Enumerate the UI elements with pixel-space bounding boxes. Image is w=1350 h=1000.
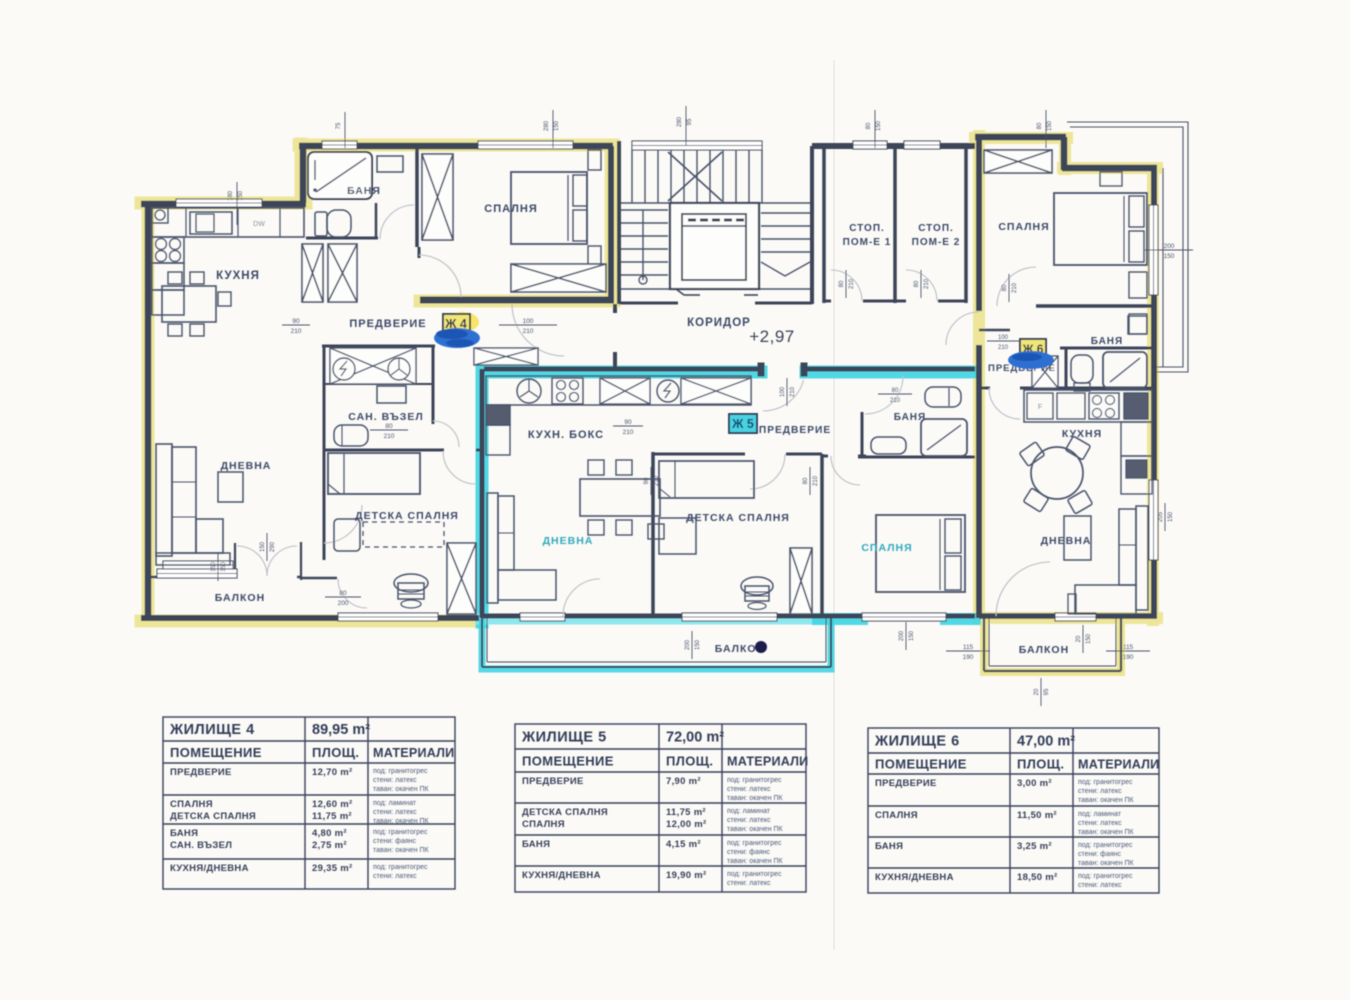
svg-text:72,00 m²: 72,00 m² [666, 730, 724, 746]
svg-text:таван: окачен ПК: таван: окачен ПК [1078, 860, 1135, 867]
svg-text:под: гранитогрес: под: гранитогрес [1078, 873, 1133, 880]
svg-text:205: 205 [1158, 511, 1164, 522]
svg-text:ПЛОЩ.: ПЛОЩ. [666, 754, 713, 769]
svg-text:стени: латекс: стени: латекс [373, 777, 417, 784]
svg-text:под: ламинат: под: ламинат [373, 800, 417, 807]
svg-text:150: 150 [260, 541, 266, 552]
svg-text:210: 210 [924, 278, 930, 289]
svg-text:таван: окачен ПК: таван: окачен ПК [1078, 797, 1135, 804]
svg-text:47,00 m²: 47,00 m² [1017, 734, 1075, 750]
svg-text:150: 150 [554, 120, 560, 131]
svg-text:4,15 m²: 4,15 m² [666, 839, 701, 850]
svg-text:190: 190 [963, 654, 974, 661]
svg-text:ПОМЕЩЕНИЕ: ПОМЕЩЕНИЕ [170, 745, 262, 760]
svg-text:СПАЛНЯ: СПАЛНЯ [484, 203, 538, 215]
svg-text:под: гранитогрес: под: гранитогрес [373, 864, 428, 871]
svg-text:210: 210 [623, 429, 634, 436]
svg-text:таван: окачен ПК: таван: окачен ПК [1078, 829, 1135, 836]
svg-text:200: 200 [1164, 243, 1175, 250]
svg-text:СПАЛНЯ: СПАЛНЯ [875, 810, 918, 821]
svg-text:115: 115 [963, 644, 974, 651]
svg-text:80: 80 [914, 280, 920, 287]
svg-text:210: 210 [384, 433, 395, 440]
svg-text:таван: окачен ПК: таван: окачен ПК [727, 795, 784, 802]
svg-text:стени: фаянс: стени: фаянс [373, 838, 416, 845]
svg-text:СПАЛНЯ: СПАЛНЯ [861, 542, 912, 554]
svg-text:ЖИЛИЩЕ 4: ЖИЛИЩЕ 4 [169, 722, 255, 738]
svg-text:12,00 m²: 12,00 m² [666, 819, 706, 830]
svg-text:под: гранитогрес: под: гранитогрес [1078, 779, 1133, 786]
svg-text:20: 20 [1076, 635, 1082, 642]
svg-text:200: 200 [685, 639, 691, 650]
svg-text:ДНЕВНА: ДНЕВНА [1041, 535, 1092, 547]
svg-text:КУХНЯ/ДНЕВНА: КУХНЯ/ДНЕВНА [875, 872, 954, 883]
svg-text:+2,97: +2,97 [749, 327, 795, 346]
svg-text:150: 150 [909, 630, 915, 641]
svg-text:стени: латекс: стени: латекс [373, 809, 417, 816]
svg-text:САН. ВЪЗЕЛ: САН. ВЪЗЕЛ [170, 840, 232, 851]
svg-text:80: 80 [1037, 122, 1043, 129]
svg-text:280: 280 [677, 116, 683, 127]
svg-text:ПРЕДВЕРИЕ: ПРЕДВЕРИЕ [875, 778, 937, 789]
svg-text:под: ламинат: под: ламинат [727, 808, 771, 815]
svg-text:80: 80 [339, 590, 347, 597]
svg-text:ДНЕВНА: ДНЕВНА [543, 535, 594, 547]
svg-text:ПОМЕЩЕНИЕ: ПОМЕЩЕНИЕ [522, 754, 614, 769]
svg-text:таван: окачен ПК: таван: окачен ПК [727, 858, 784, 865]
svg-text:таван: окачен ПК: таван: окачен ПК [727, 826, 784, 833]
svg-text:80: 80 [866, 122, 872, 129]
svg-text:80: 80 [1002, 284, 1008, 291]
svg-text:стени: латекс: стени: латекс [727, 786, 771, 793]
svg-text:СПАЛНЯ: СПАЛНЯ [170, 799, 213, 810]
svg-text:БАЛКОН: БАЛКОН [215, 592, 265, 604]
svg-text:29,35 m²: 29,35 m² [312, 863, 352, 874]
svg-text:БАЛКОН: БАЛКОН [1019, 644, 1069, 656]
svg-text:89,95 m²: 89,95 m² [312, 722, 370, 738]
svg-text:F: F [1038, 404, 1042, 411]
svg-text:стени: латекс: стени: латекс [1078, 820, 1122, 827]
svg-text:115: 115 [1123, 644, 1134, 651]
svg-text:11,75 m²: 11,75 m² [312, 811, 352, 822]
svg-text:таван: окачен ПК: таван: окачен ПК [373, 818, 430, 825]
svg-text:100: 100 [780, 386, 786, 397]
svg-text:ЖИЛИЩЕ 6: ЖИЛИЩЕ 6 [874, 734, 960, 750]
svg-text:150: 150 [1168, 511, 1174, 522]
svg-text:12,70 m²: 12,70 m² [312, 767, 352, 778]
svg-text:под: гранитогрес: под: гранитогрес [373, 829, 428, 836]
svg-text:210: 210 [813, 475, 819, 486]
svg-text:ДЕТСКА СПАЛНЯ: ДЕТСКА СПАЛНЯ [686, 512, 790, 524]
svg-text:ЖИЛИЩЕ 5: ЖИЛИЩЕ 5 [521, 730, 607, 746]
svg-text:20: 20 [1034, 688, 1040, 695]
svg-text:100: 100 [523, 318, 534, 325]
svg-text:стени: фаянс: стени: фаянс [727, 849, 770, 856]
svg-text:под: гранитогрес: под: гранитогрес [727, 871, 782, 878]
svg-text:под: гранитогрес: под: гранитогрес [727, 777, 782, 784]
svg-text:под: гранитогрес: под: гранитогрес [727, 840, 782, 847]
svg-text:210: 210 [890, 398, 901, 404]
svg-text:ПОМЕЩЕНИЕ: ПОМЕЩЕНИЕ [875, 757, 967, 772]
svg-text:210: 210 [998, 345, 1009, 351]
svg-text:САН. ВЪЗЕЛ: САН. ВЪЗЕЛ [348, 411, 423, 423]
svg-text:210: 210 [523, 328, 534, 335]
svg-text:стени: латекс: стени: латекс [1078, 788, 1122, 795]
svg-text:19,90 m²: 19,90 m² [666, 870, 706, 881]
svg-text:под: гранитогрес: под: гранитогрес [373, 768, 428, 775]
svg-text:100: 100 [998, 335, 1009, 341]
svg-text:стени: латекс: стени: латекс [373, 873, 417, 880]
svg-text:4,80 m²: 4,80 m² [312, 828, 347, 839]
svg-text:Ж 5: Ж 5 [731, 417, 754, 431]
svg-text:МАТЕРИАЛИ: МАТЕРИАЛИ [727, 755, 808, 769]
svg-text:ДЕТСКА СПАЛНЯ: ДЕТСКА СПАЛНЯ [522, 807, 608, 818]
svg-text:280: 280 [544, 120, 550, 131]
svg-text:стени: латекс: стени: латекс [727, 880, 771, 887]
svg-text:стени: латекс: стени: латекс [1078, 882, 1122, 889]
svg-text:DW: DW [253, 221, 265, 228]
svg-text:90: 90 [624, 419, 632, 426]
svg-text:80: 80 [839, 280, 845, 287]
svg-text:200: 200 [338, 600, 349, 607]
svg-text:190: 190 [1123, 654, 1134, 661]
svg-text:11,75 m²: 11,75 m² [666, 807, 706, 818]
svg-text:150: 150 [221, 561, 227, 572]
svg-text:150: 150 [1047, 120, 1053, 131]
svg-text:ПРЕДВЕРИЕ: ПРЕДВЕРИЕ [170, 767, 232, 778]
svg-text:ПРЕДВЕРИЕ: ПРЕДВЕРИЕ [522, 776, 584, 787]
svg-text:3,00 m²: 3,00 m² [1017, 778, 1052, 789]
svg-text:180: 180 [228, 190, 234, 201]
svg-text:КУХН. БОКС: КУХН. БОКС [528, 429, 604, 441]
svg-text:ПЛОЩ.: ПЛОЩ. [312, 745, 359, 760]
svg-text:СПАЛНЯ: СПАЛНЯ [998, 221, 1049, 233]
svg-text:150: 150 [1164, 253, 1175, 260]
svg-text:КОРИДОР: КОРИДОР [687, 317, 751, 329]
svg-text:90: 90 [644, 477, 650, 484]
svg-text:под: ламинат: под: ламинат [1078, 811, 1122, 818]
svg-text:ДНЕВНА: ДНЕВНА [221, 460, 272, 472]
svg-text:БАНЯ: БАНЯ [875, 841, 903, 852]
svg-text:75: 75 [336, 122, 342, 129]
svg-text:80: 80 [892, 388, 899, 394]
svg-text:210: 210 [291, 328, 302, 335]
svg-text:ПЛОЩ.: ПЛОЩ. [1017, 757, 1064, 772]
svg-text:90: 90 [292, 318, 300, 325]
svg-text:СТОП.: СТОП. [918, 223, 954, 234]
svg-text:МАТЕРИАЛИ: МАТЕРИАЛИ [1078, 758, 1159, 772]
svg-text:ДЕТСКА СПАЛНЯ: ДЕТСКА СПАЛНЯ [170, 811, 256, 822]
svg-text:ДЕТСКА СПАЛНЯ: ДЕТСКА СПАЛНЯ [355, 510, 459, 522]
svg-text:КУХНЯ/ДНЕВНА: КУХНЯ/ДНЕВНА [522, 870, 601, 881]
svg-text:95: 95 [687, 118, 693, 125]
svg-text:150: 150 [876, 120, 882, 131]
svg-text:80: 80 [803, 477, 809, 484]
svg-text:210: 210 [790, 386, 796, 397]
svg-text:ПОМ-Е 2: ПОМ-Е 2 [912, 237, 961, 248]
svg-text:12,60 m²: 12,60 m² [312, 799, 352, 810]
svg-text:стени: латекс: стени: латекс [727, 817, 771, 824]
svg-text:таван: окачен ПК: таван: окачен ПК [373, 847, 430, 854]
svg-text:150: 150 [1086, 633, 1092, 644]
svg-text:стени: фаянс: стени: фаянс [1078, 851, 1121, 858]
svg-text:18,50 m²: 18,50 m² [1017, 872, 1057, 883]
svg-text:КУХНЯ/ДНЕВНА: КУХНЯ/ДНЕВНА [170, 863, 249, 874]
svg-text:95: 95 [1044, 688, 1050, 695]
svg-text:ПРЕДВЕРИЕ: ПРЕДВЕРИЕ [349, 318, 426, 330]
svg-text:СПАЛНЯ: СПАЛНЯ [522, 819, 565, 830]
svg-text:200: 200 [899, 630, 905, 641]
svg-text:под: гранитогрес: под: гранитогрес [1078, 842, 1133, 849]
svg-text:ПОМ-Е 1: ПОМ-Е 1 [843, 237, 892, 248]
svg-text:150: 150 [695, 639, 701, 650]
svg-text:210: 210 [1012, 282, 1018, 293]
svg-text:БАНЯ: БАНЯ [170, 828, 198, 839]
svg-text:МАТЕРИАЛИ: МАТЕРИАЛИ [373, 746, 454, 760]
svg-text:КУХНЯ: КУХНЯ [216, 270, 260, 282]
svg-text:БАНЯ: БАНЯ [894, 412, 926, 423]
svg-text:БАНЯ: БАНЯ [522, 839, 550, 850]
svg-text:150: 150 [211, 561, 217, 572]
svg-text:3,25 m²: 3,25 m² [1017, 841, 1052, 852]
svg-text:150: 150 [238, 190, 244, 201]
svg-text:210: 210 [849, 278, 855, 289]
svg-text:80: 80 [385, 423, 393, 430]
svg-text:БАНЯ: БАНЯ [1091, 336, 1123, 347]
svg-text:210: 210 [654, 475, 660, 486]
svg-text:ПРЕДВЕРИЕ: ПРЕДВЕРИЕ [759, 425, 831, 436]
svg-text:7,90 m²: 7,90 m² [666, 776, 701, 787]
svg-text:КУХНЯ: КУХНЯ [1062, 428, 1102, 440]
svg-text:СТОП.: СТОП. [849, 223, 885, 234]
svg-text:290: 290 [270, 541, 276, 552]
svg-text:таван: окачен ПК: таван: окачен ПК [373, 786, 430, 793]
svg-text:2,75 m²: 2,75 m² [312, 840, 347, 851]
svg-text:БАНЯ: БАНЯ [347, 185, 381, 197]
svg-text:11,50 m²: 11,50 m² [1017, 810, 1057, 821]
